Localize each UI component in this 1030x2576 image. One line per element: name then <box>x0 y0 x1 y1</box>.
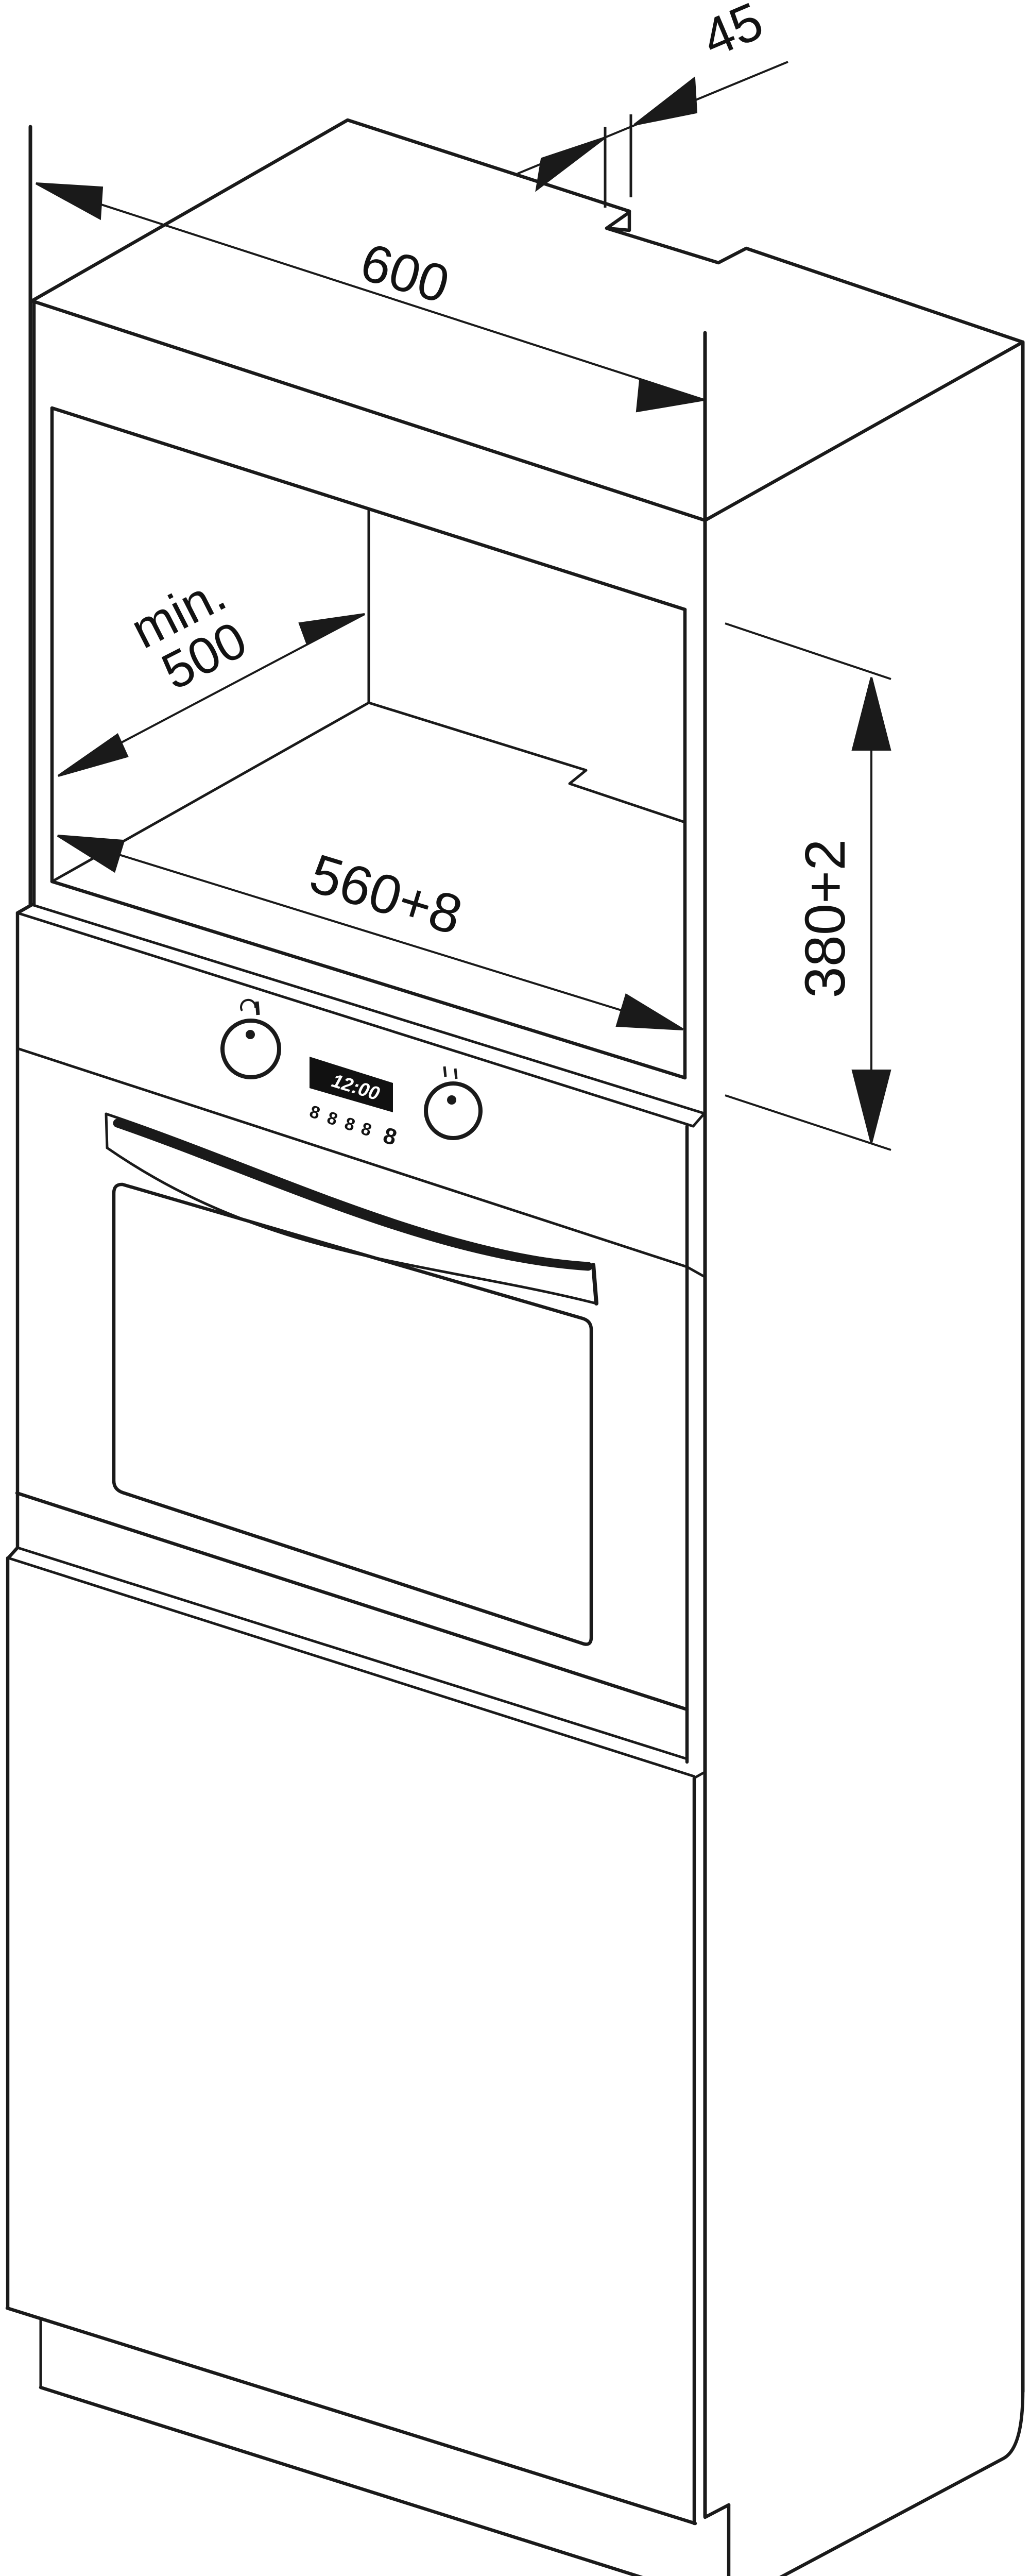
svg-text:380+2: 380+2 <box>794 839 857 998</box>
